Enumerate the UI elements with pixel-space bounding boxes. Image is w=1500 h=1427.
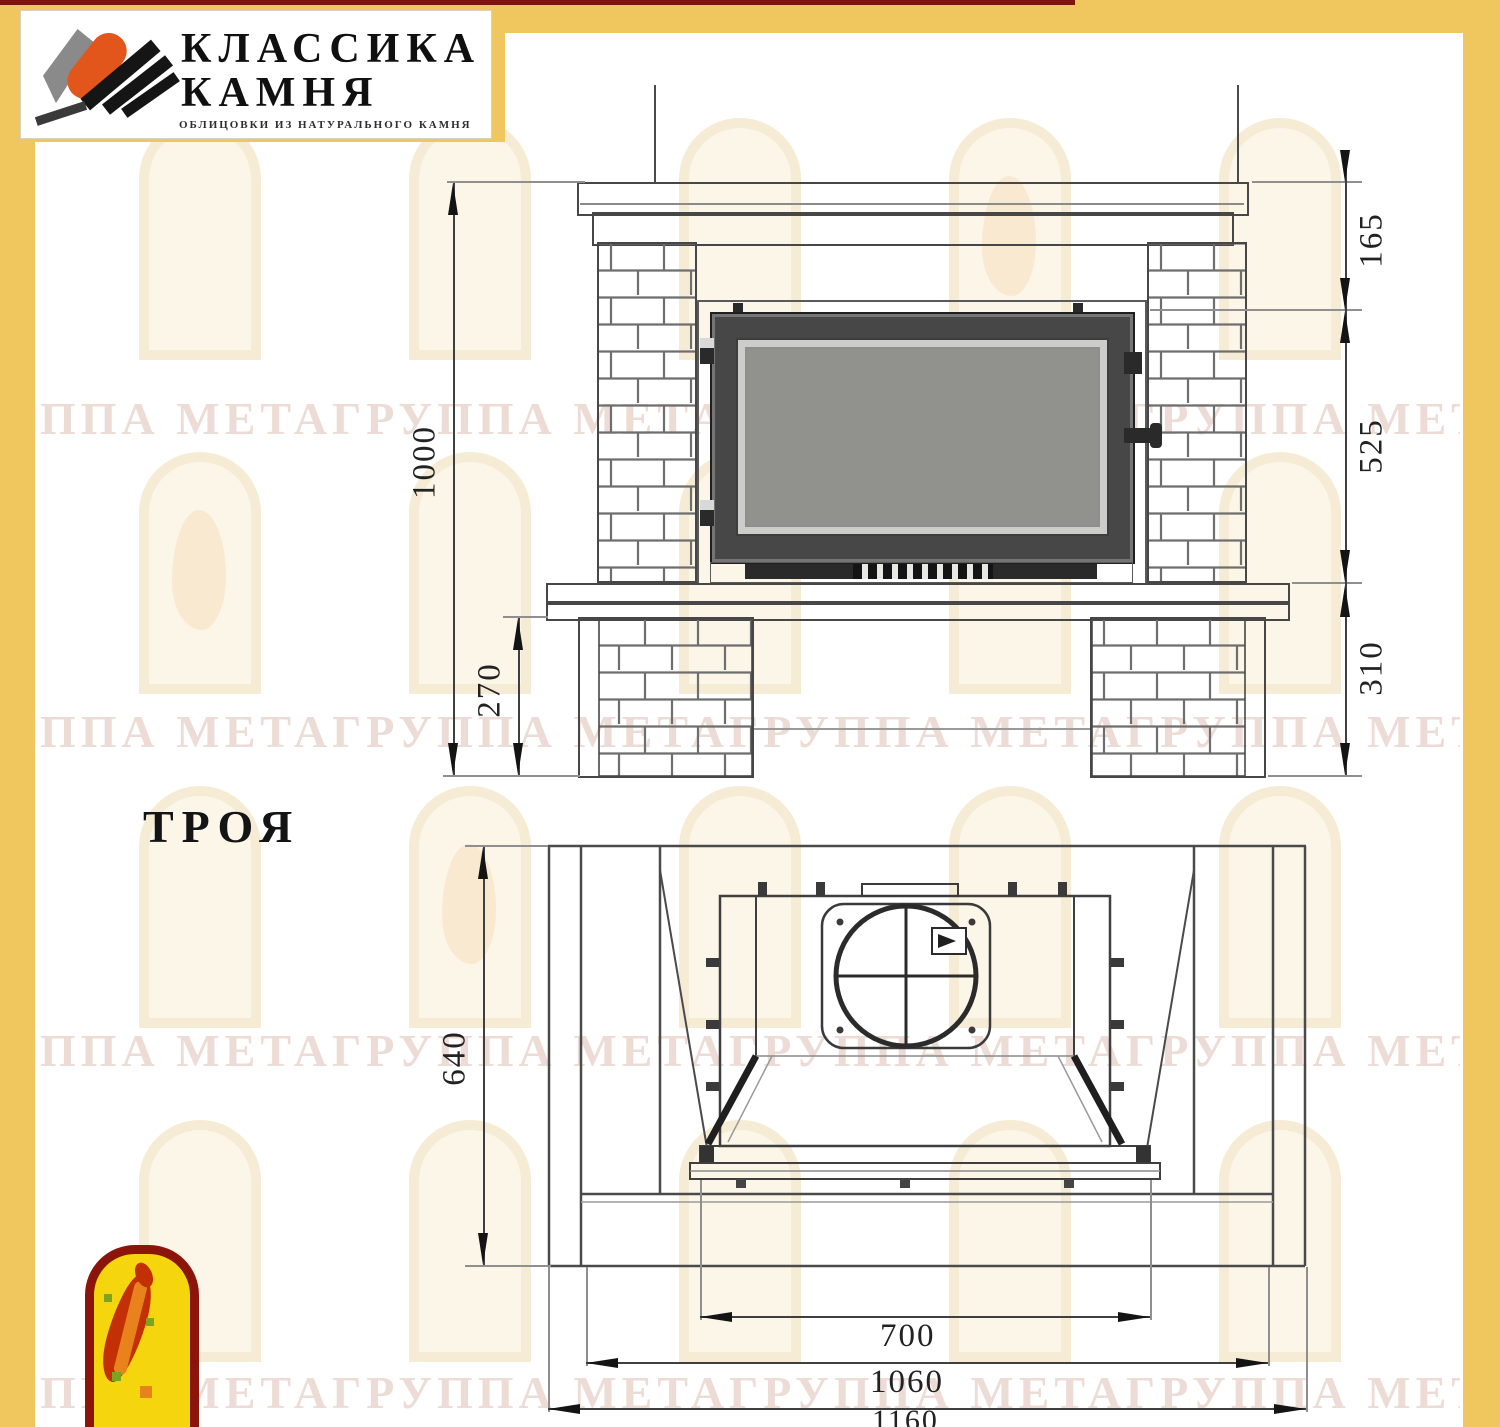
dim-arrow [1340,743,1350,775]
chimney-line-right [1237,85,1239,182]
dim-label-270: 270 [472,662,509,718]
ext-line [1268,1267,1270,1366]
logo-tagline: ОБЛИЦОВКИ ИЗ НАТУРАЛЬНОГО КАМНЯ [179,119,472,131]
plan-wall-left [549,846,660,1266]
firebox-tab-left [733,303,743,312]
ext-line [586,1267,588,1366]
ext-line [1292,582,1362,584]
firebox-tab-right [1073,303,1083,312]
plan-view [540,840,1320,1280]
plan-side-hooks [706,958,1124,1091]
frame-right [1463,0,1500,1427]
plan-splay-right [1147,870,1194,1148]
frame-left [0,0,35,1427]
ext-line [700,1180,702,1320]
vent-grille [853,564,993,579]
door-hinge-top [700,338,714,364]
watermark-arch [409,118,531,360]
model-title: ТРОЯ [143,800,300,853]
ext-line [443,775,580,777]
firebird-spark [112,1372,121,1381]
plan-front-strip-1 [700,1146,1150,1163]
door-hinge-bottom [700,500,714,526]
dim-arrow [1340,150,1350,182]
pedestal-right [1090,617,1266,778]
page: ППА МЕТАГРУППА МЕТАГРУППА МЕТАГРУППА МЕТ… [0,0,1500,1427]
logo-brand-line2: КАМНЯ [181,69,379,117]
dim-label-1160: 1160 [872,1404,939,1427]
column-left-bricks [597,242,697,583]
plan-wall-right [1194,846,1305,1266]
dim-arrow [548,1404,580,1414]
door-latch [1124,352,1142,374]
firebird-spark [104,1294,112,1302]
firebird-spark [146,1318,154,1326]
ext-line [1306,1267,1308,1412]
dim-label-1060: 1060 [870,1364,944,1401]
ext-line [465,1265,551,1267]
dim-arrow [513,618,523,650]
firebird-emblem [85,1245,199,1427]
ext-line [1150,1180,1152,1320]
dim-label-165: 165 [1354,212,1391,268]
dim-arrow [513,743,523,775]
dim-line-1000 [453,183,455,775]
plan-strip-end-right [1136,1146,1150,1163]
watermark-figure [172,510,226,630]
ext-line [503,616,548,618]
plan-insert-box [720,896,1110,1146]
logo-mark-gray-slash [35,101,87,126]
dim-label-310: 310 [1354,640,1391,696]
watermark-text: ППА МЕТАГРУППА МЕТАГРУППА МЕТАГРУППА МЕТ… [40,1366,1460,1419]
dim-arrow [1274,1404,1306,1414]
firebox-door-glass [736,338,1109,536]
dim-line-640 [483,847,485,1265]
dim-arrow [700,1312,732,1322]
ext-line [548,1267,550,1412]
firebird-spark [140,1386,152,1398]
dim-arrow [448,743,458,775]
column-right-bricks [1147,242,1247,583]
pedestal-recess-line [754,728,1090,730]
dim-arrow [1236,1358,1268,1368]
dim-arrow [478,1233,488,1265]
dim-arrow [1340,585,1350,617]
top-red-stripe [0,0,1075,5]
mantel-shelf-molding-line [580,203,1244,205]
logo: КЛАССИКА КАМНЯ ОБЛИЦОВКИ ИЗ НАТУРАЛЬНОГО… [20,10,492,139]
chimney-line-left [654,85,656,182]
dim-label-1000: 1000 [407,425,444,499]
dim-label-525: 525 [1354,418,1391,474]
dim-arrow [1118,1312,1150,1322]
mantel-shelf-top [577,182,1249,216]
door-handle-knob [1150,423,1162,448]
plan-feet [736,1179,1074,1188]
mantel-shelf-lower [592,212,1234,246]
plan-strip-end-left [700,1146,714,1163]
dim-arrow [478,847,488,879]
dim-arrow [1340,550,1350,582]
pedestal-left [578,617,754,778]
ext-line [447,181,585,183]
ext-line [1268,775,1362,777]
watermark-arch [409,1120,531,1362]
watermark-arch [139,118,261,360]
dim-arrow [448,183,458,215]
logo-brand-line1: КЛАССИКА [181,25,481,73]
dim-arrow [1340,278,1350,310]
ext-line [1150,309,1362,311]
plan-center-tab [862,884,958,896]
dim-line-right [1345,150,1347,775]
dim-arrow [586,1358,618,1368]
dim-label-640: 640 [437,1030,474,1086]
plan-splay-left [660,870,707,1148]
dim-arrow [1340,311,1350,343]
dim-label-700: 700 [880,1318,936,1355]
